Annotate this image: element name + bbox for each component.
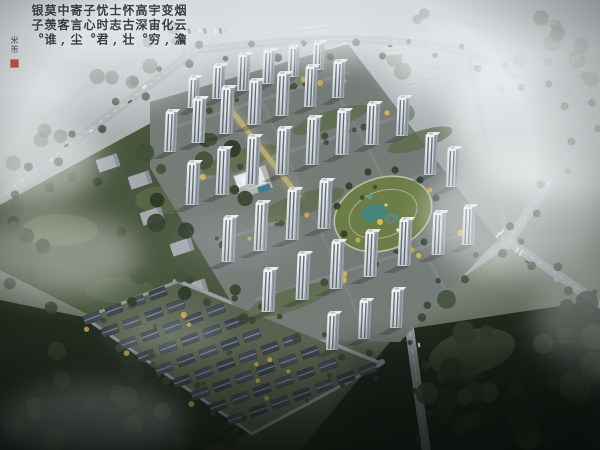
poem-column: 银子。 bbox=[30, 4, 43, 66]
poem-column: 中客, bbox=[56, 4, 69, 66]
poem-column: 怀古壮 bbox=[121, 4, 134, 66]
render-scene bbox=[0, 0, 600, 450]
poem-column: 宇宙穷 bbox=[147, 4, 160, 66]
poem-column: 忧时君 bbox=[95, 4, 108, 66]
calligraphy-poem: 烟云澹 变化, 宇宙穷 高深。 怀古壮 士志, 忧时君 子心。 寄言尘 中客, … bbox=[30, 4, 186, 66]
aerial-rendering: 烟云澹 变化, 宇宙穷 高深。 怀古壮 士志, 忧时君 子心。 寄言尘 中客, … bbox=[0, 0, 600, 450]
artist-seal bbox=[10, 59, 19, 68]
poem-column: 莫羡谁 bbox=[43, 4, 56, 66]
vignette bbox=[0, 0, 600, 450]
artist-signature: 米芾 bbox=[9, 36, 20, 54]
poem-column: 变化, bbox=[160, 4, 173, 66]
poem-column: 寄言尘 bbox=[69, 4, 82, 66]
poem-column: 烟云澹 bbox=[173, 4, 186, 66]
poem-column: 子心。 bbox=[82, 4, 95, 66]
poem-column: 士志, bbox=[108, 4, 121, 66]
poem-column: 高深。 bbox=[134, 4, 147, 66]
